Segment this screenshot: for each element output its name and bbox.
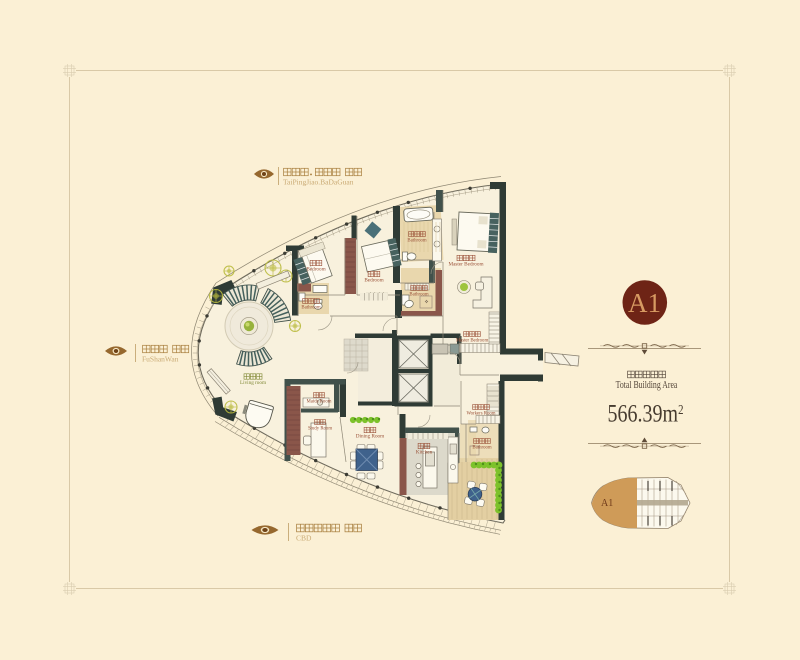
svg-text:Bathroom: Bathroom: [472, 445, 491, 450]
svg-text:Kitchen: Kitchen: [416, 449, 433, 455]
svg-text:Total Building Area: Total Building Area: [616, 379, 678, 390]
svg-text:TaiPingJiao.BaDaGuan: TaiPingJiao.BaDaGuan: [283, 178, 354, 187]
svg-text:Dining Room: Dining Room: [356, 433, 384, 439]
svg-text:Master Bedroom: Master Bedroom: [448, 261, 483, 267]
svg-text:Living room: Living room: [240, 380, 266, 386]
svg-text:A1: A1: [628, 288, 661, 318]
svg-text:Maids Room: Maids Room: [307, 399, 332, 404]
svg-text:Bedroom: Bedroom: [306, 266, 325, 272]
svg-text:Study Room: Study Room: [308, 426, 332, 431]
svg-text:Bedroom: Bedroom: [364, 277, 383, 283]
svg-text:566.39m2: 566.39m2: [608, 399, 684, 427]
svg-text:FuShanWan: FuShanWan: [142, 355, 179, 364]
svg-text:A1: A1: [601, 498, 613, 509]
svg-text:Bathroom: Bathroom: [407, 238, 426, 243]
svg-text:Workers Room: Workers Room: [466, 411, 495, 416]
svg-text:Bathroom: Bathroom: [409, 292, 428, 297]
svg-text:Bathroom: Bathroom: [301, 305, 320, 310]
svg-text:Master Bedroom: Master Bedroom: [456, 338, 489, 343]
svg-text:CBD: CBD: [296, 534, 312, 543]
